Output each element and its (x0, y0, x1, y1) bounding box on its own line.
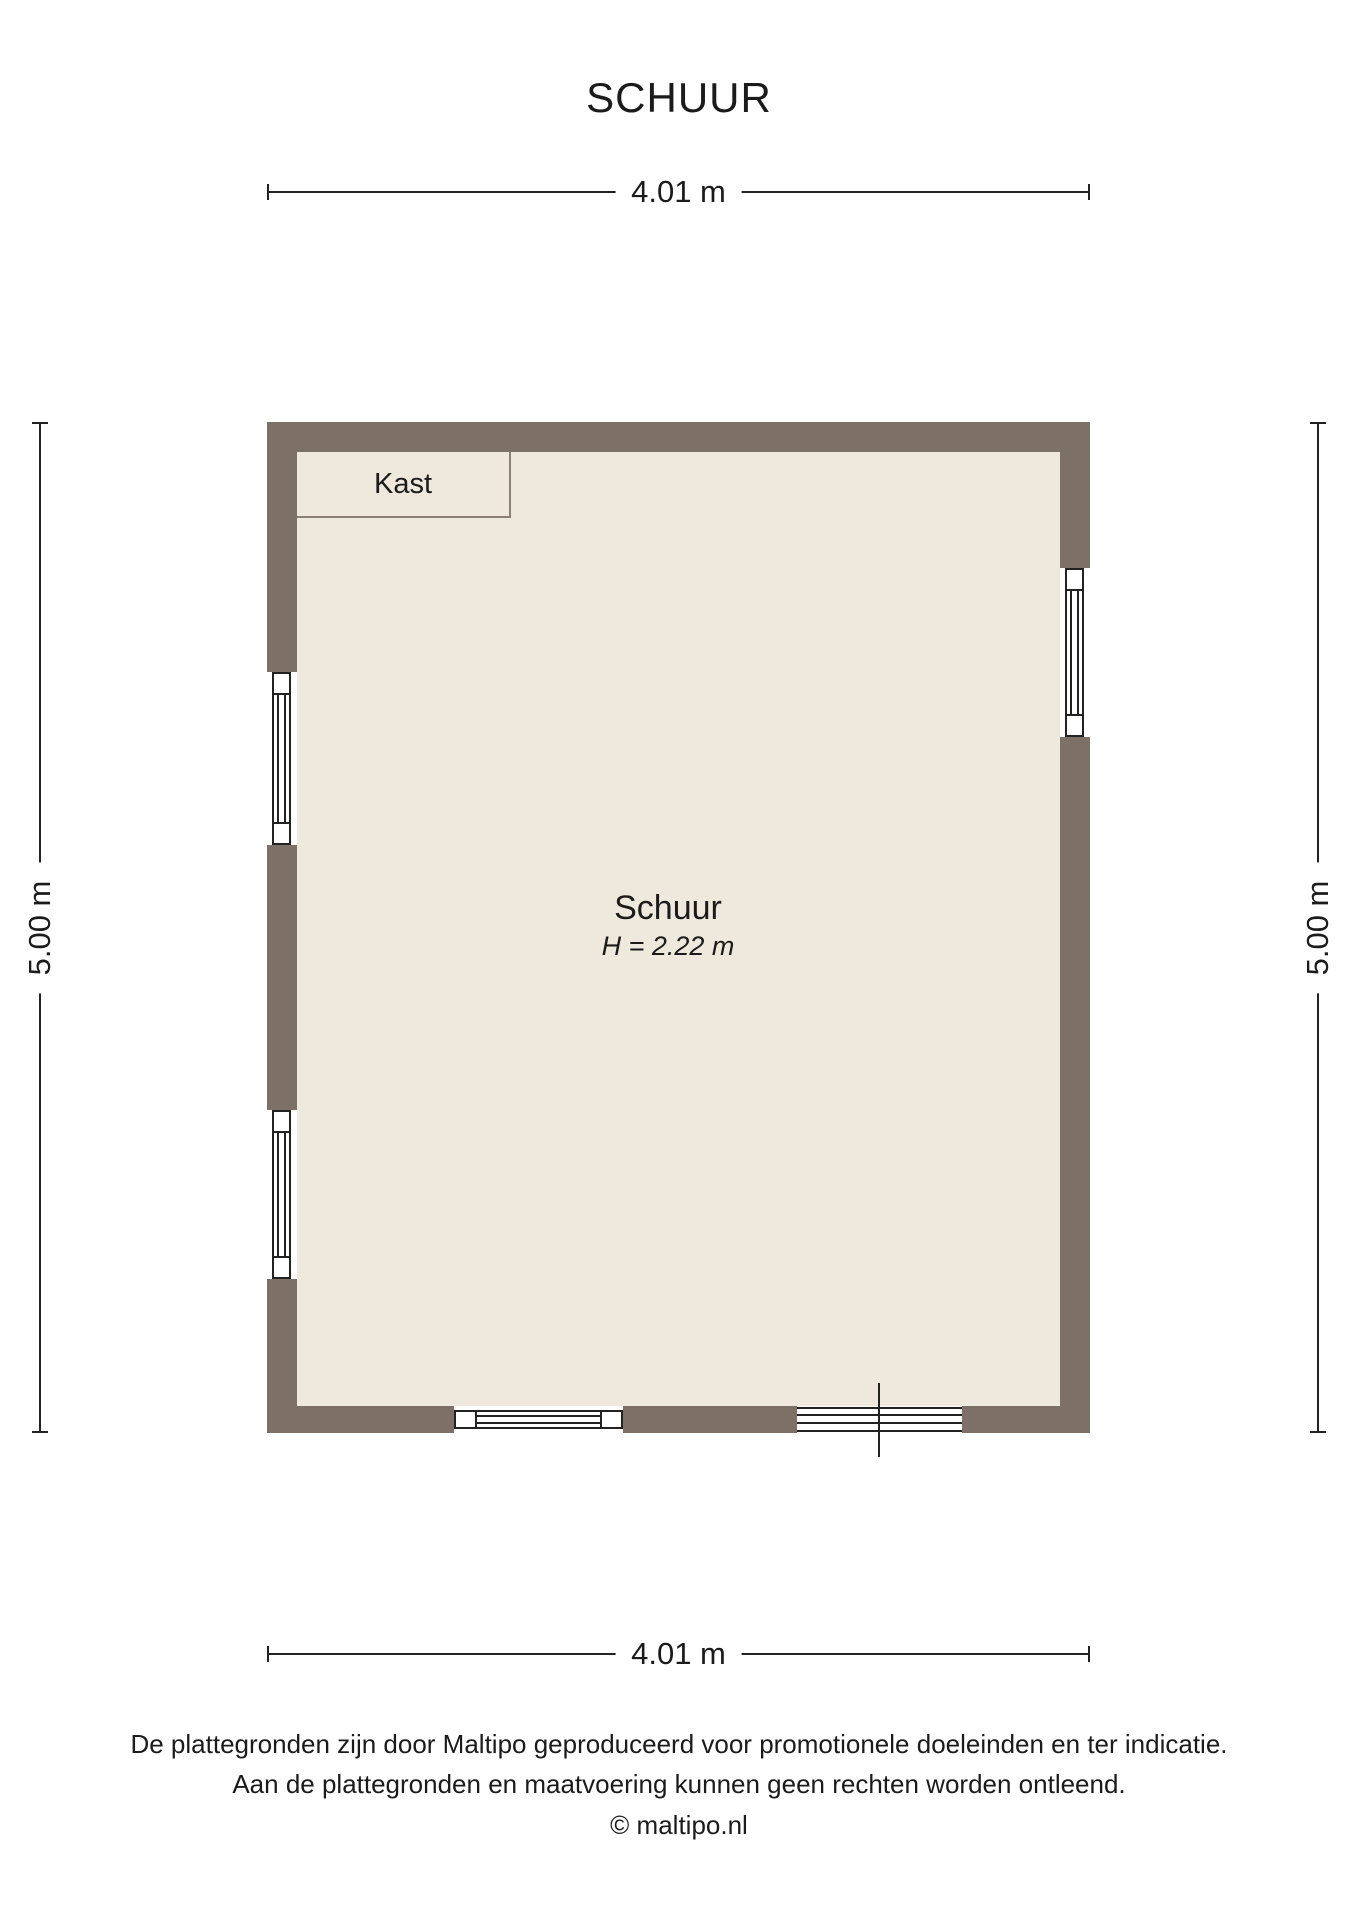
window-glass-icon (277, 695, 286, 822)
window-sill-icon (274, 822, 289, 843)
window-symbol-right (1060, 568, 1090, 737)
dimension-left: 5.00 m (32, 422, 48, 1433)
dimension-bottom-label: 4.01 m (615, 1636, 742, 1672)
dimension-left-label: 5.00 m (22, 862, 58, 993)
dimension-tick (1088, 1646, 1090, 1662)
room-height-label: H = 2.22 m (602, 929, 735, 964)
closet-area: Kast (297, 452, 511, 518)
window-sill-icon (600, 1412, 621, 1427)
dimension-top-label: 4.01 m (615, 174, 742, 210)
window-sill-icon (1067, 714, 1082, 735)
window-frame-icon (454, 1410, 623, 1429)
window-glass-icon (277, 1133, 286, 1256)
dimension-tick (267, 184, 269, 200)
window-symbol-left-2 (267, 1110, 297, 1279)
dimension-tick (1088, 184, 1090, 200)
window-frame-icon (272, 672, 291, 845)
window-sill-icon (456, 1412, 477, 1427)
footer-disclaimer: De plattegronden zijn door Maltipo gepro… (0, 1724, 1358, 1845)
window-sill-icon (274, 674, 289, 695)
copyright-line: © maltipo.nl (0, 1805, 1358, 1845)
disclaimer-line-1: De plattegronden zijn door Maltipo gepro… (0, 1724, 1358, 1764)
page-title: SCHUUR (0, 74, 1358, 122)
window-sill-icon (274, 1112, 289, 1133)
door-swing-icon (878, 1383, 880, 1457)
window-frame-icon (1065, 568, 1084, 737)
window-sill-icon (1067, 570, 1082, 591)
dimension-tick (1310, 1431, 1326, 1433)
closet-label: Kast (374, 468, 432, 501)
window-glass-icon (477, 1415, 600, 1424)
dimension-right-label: 5.00 m (1300, 862, 1336, 993)
dimension-right: 5.00 m (1310, 422, 1326, 1433)
window-sill-icon (274, 1256, 289, 1277)
room-name: Schuur (602, 888, 735, 929)
floor-plan-page: SCHUUR 4.01 m 5.00 m 5.00 m Kast Schuur … (0, 0, 1358, 1920)
room-label: Schuur H = 2.22 m (602, 888, 735, 964)
window-glass-icon (1070, 591, 1079, 714)
dimension-tick (1310, 422, 1326, 424)
dimension-tick (32, 1431, 48, 1433)
window-symbol-bottom (454, 1406, 623, 1433)
window-frame-icon (272, 1110, 291, 1279)
dimension-top: 4.01 m (267, 184, 1090, 200)
dimension-tick (267, 1646, 269, 1662)
dimension-tick (32, 422, 48, 424)
disclaimer-line-2: Aan de plattegronden en maatvoering kunn… (0, 1764, 1358, 1804)
dimension-bottom: 4.01 m (267, 1646, 1090, 1662)
window-symbol-left-1 (267, 672, 297, 845)
